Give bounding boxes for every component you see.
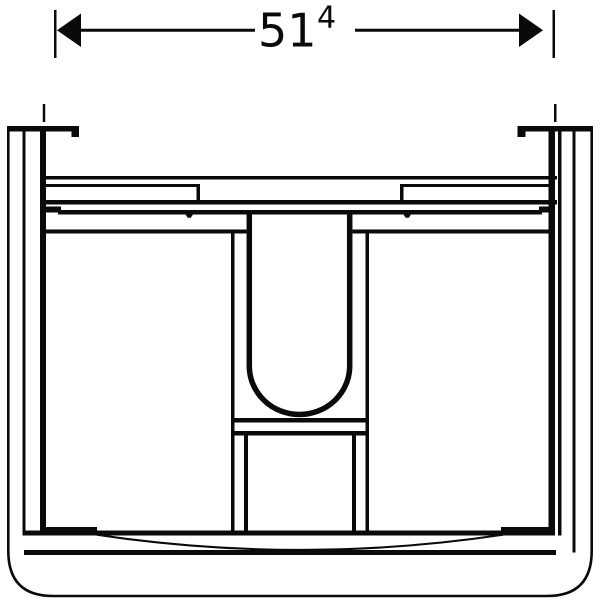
dimension-value-main: 51 bbox=[258, 4, 317, 58]
dimension-value-superscript: 4 bbox=[317, 1, 336, 36]
right-side-panel-line-inner bbox=[558, 132, 562, 536]
bottom-front-edge bbox=[24, 550, 556, 555]
carcass-top-line bbox=[43, 176, 557, 180]
left-side-panel-line bbox=[23, 132, 26, 536]
dimension-line-right-segment bbox=[355, 29, 531, 32]
drawer-top-rail-bottom-left bbox=[46, 230, 247, 234]
front-joint-line-left bbox=[231, 230, 235, 531]
dimension-tick-right bbox=[553, 10, 556, 58]
front-joint-line-right bbox=[366, 230, 370, 531]
front-bottom-bar-left bbox=[43, 527, 97, 536]
right-side-inner-edge bbox=[549, 132, 556, 532]
recess-cross-rail-lower bbox=[233, 431, 370, 436]
interior-rail-line-upper bbox=[43, 200, 557, 205]
dimension-extension-stub-left bbox=[43, 104, 46, 122]
recess-cross-rail-upper bbox=[233, 418, 370, 423]
right-side-panel-line bbox=[573, 132, 576, 553]
drawer-runner-right-top bbox=[400, 184, 554, 187]
dimension-extension-stub-right bbox=[554, 104, 557, 122]
cabinet-dimension-drawing: 51 4 bbox=[0, 0, 600, 600]
drawer-top-rail-bottom-right bbox=[353, 230, 555, 234]
drawing-background bbox=[0, 0, 600, 600]
interior-rail-line-lower bbox=[58, 210, 542, 215]
technical-drawing-canvas: 51 4 bbox=[0, 0, 600, 600]
dimension-line-left-segment bbox=[79, 29, 255, 32]
inner-drawer-side-right bbox=[352, 436, 356, 531]
dimension-tick-left bbox=[54, 10, 57, 58]
inner-drawer-side-left bbox=[244, 436, 248, 531]
front-bottom-bar-right bbox=[501, 527, 555, 536]
drawer-runner-left-top bbox=[46, 184, 200, 187]
left-side-inner-edge bbox=[40, 132, 46, 532]
